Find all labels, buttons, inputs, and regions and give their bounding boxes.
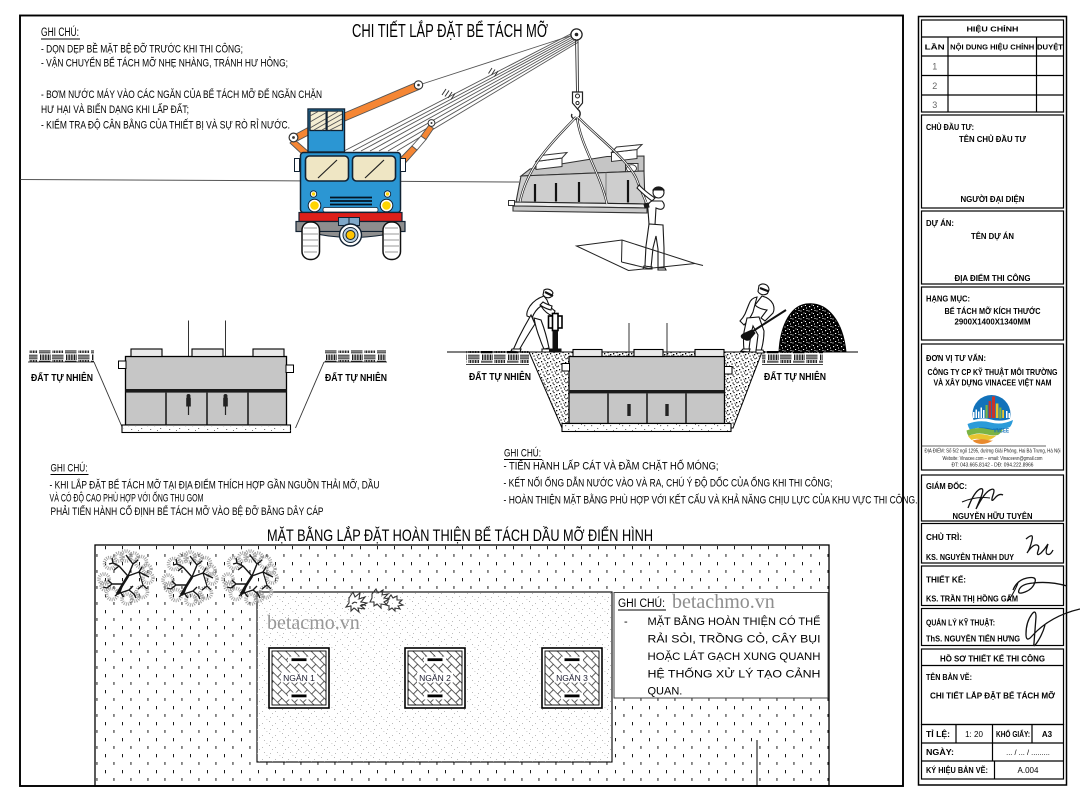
- svg-text:2900X1400X1340MM: 2900X1400X1340MM: [955, 318, 1031, 327]
- svg-text:CHI TIẾT LẮP ĐẶT BỂ TÁCH MỠ: CHI TIẾT LẮP ĐẶT BỂ TÁCH MỠ: [352, 20, 548, 41]
- svg-text:GHI CHÚ:: GHI CHÚ:: [51, 462, 88, 475]
- svg-text:VÀ CÓ ĐỘ CAO PHÙ HỢP VỚI ỐNG T: VÀ CÓ ĐỘ CAO PHÙ HỢP VỚI ỐNG THU GOM: [50, 491, 204, 505]
- svg-text:HƯ HẠI VÀ BIẾN DẠNG KHI LẤP ĐẤ: HƯ HẠI VÀ BIẾN DẠNG KHI LẤP ĐẤT;: [41, 103, 189, 116]
- svg-text:QUẢN LÝ KỸ THUẬT:: QUẢN LÝ KỸ THUẬT:: [926, 619, 995, 628]
- svg-text:- DỌN DẸP BỀ MẶT BỆ ĐỠ TRƯỚC K: - DỌN DẸP BỀ MẶT BỆ ĐỠ TRƯỚC KHI THI CÔN…: [41, 43, 243, 56]
- svg-text:CÔNG TY CP KỸ THUẬT MÔI TRƯỜNG: CÔNG TY CP KỸ THUẬT MÔI TRƯỜNG: [928, 366, 1058, 377]
- svg-text:PHẢI TIẾN HÀNH CỐ ĐỊNH BỂ TÁCH: PHẢI TIẾN HÀNH CỐ ĐỊNH BỂ TÁCH MỠ VÀO BỆ…: [51, 504, 324, 518]
- svg-text:HỆ THỐNG XỬ LÝ TẠO CẢNH: HỆ THỐNG XỬ LÝ TẠO CẢNH: [648, 667, 821, 681]
- svg-text:2: 2: [932, 81, 937, 91]
- svg-text:GHI CHÚ:: GHI CHÚ:: [41, 26, 79, 39]
- svg-text:A.004: A.004: [1018, 766, 1039, 775]
- svg-text:- BƠM NƯỚC MÁY VÀO CÁC NGĂN CỦ: - BƠM NƯỚC MÁY VÀO CÁC NGĂN CỦA BỂ TÁCH …: [41, 88, 322, 101]
- svg-text:TỈ LỆ:: TỈ LỆ:: [926, 730, 950, 739]
- svg-text:NGĂN 3: NGĂN 3: [556, 673, 588, 683]
- svg-text:VNCEE: VNCEE: [994, 428, 1010, 435]
- svg-text:QUAN.: QUAN.: [648, 686, 683, 698]
- svg-text:CHỦ ĐẦU TƯ:: CHỦ ĐẦU TƯ:: [926, 122, 974, 132]
- svg-text:- KHI LẮP ĐẶT BỂ TÁCH MỠ TẠI Đ: - KHI LẮP ĐẶT BỂ TÁCH MỠ TẠI ĐỊA ĐIỂM TH…: [50, 479, 380, 492]
- svg-text:RẢI SỎI, TRỒNG CỎ, CÂY BỤI: RẢI SỎI, TRỒNG CỎ, CÂY BỤI: [648, 633, 821, 646]
- svg-text:ĐẤT TỰ NHIÊN: ĐẤT TỰ NHIÊN: [325, 371, 387, 384]
- svg-text:ĐT: 043.665.8142 - DĐ: 094.222: ĐT: 043.665.8142 - DĐ: 094.222.8966: [952, 463, 1034, 469]
- svg-text:- HOÀN THIỆN MẶT BẰNG PHÙ HỢP: - HOÀN THIỆN MẶT BẰNG PHÙ HỢP VỚI KẾT CẤ…: [504, 494, 918, 507]
- svg-text:TÊN BẢN VẼ:: TÊN BẢN VẼ:: [926, 673, 972, 682]
- svg-text:A3: A3: [1042, 730, 1053, 739]
- svg-text:GHI CHÚ:: GHI CHÚ:: [618, 597, 665, 610]
- svg-text:1: 1: [932, 62, 937, 72]
- svg-text:HOẶC LÁT GẠCH XUNG QUANH: HOẶC LÁT GẠCH XUNG QUANH: [648, 650, 821, 663]
- svg-text:BỂ TÁCH MỠ KÍCH THƯỚC: BỂ TÁCH MỠ KÍCH THƯỚC: [945, 307, 1041, 316]
- svg-text:THIẾT KẾ:: THIẾT KẾ:: [926, 575, 966, 585]
- svg-text:VÀ XÂY DỰNG VINACEE VIỆT NAM: VÀ XÂY DỰNG VINACEE VIỆT NAM: [934, 377, 1052, 388]
- svg-text:- TIẾN HÀNH LẤP CÁT VÀ ĐẦM CHẶ: - TIẾN HÀNH LẤP CÁT VÀ ĐẦM CHẶT HỐ MÓNG;: [504, 459, 719, 473]
- svg-text:TÊN CHỦ ĐẦU TƯ: TÊN CHỦ ĐẦU TƯ: [959, 134, 1026, 144]
- svg-text:betacmo.vn: betacmo.vn: [267, 612, 360, 634]
- svg-text:NGĂN 1: NGĂN 1: [283, 673, 315, 683]
- svg-text:- KIỂM TRA ĐỘ CÂN BẰNG CỦA THI: - KIỂM TRA ĐỘ CÂN BẰNG CỦA THIẾT BỊ VÀ S…: [41, 119, 290, 132]
- svg-text:MẶT BẰNG HOÀN THIỆN CÓ THỂ: MẶT BẰNG HOÀN THIỆN CÓ THỂ: [648, 615, 821, 628]
- svg-text:NGÀY:: NGÀY:: [926, 748, 954, 757]
- svg-text:CHỦ TRÌ:: CHỦ TRÌ:: [926, 533, 962, 542]
- svg-text:-: -: [624, 616, 628, 628]
- svg-text:NGĂN 2: NGĂN 2: [419, 673, 451, 683]
- svg-text:- KẾT NỐI ỐNG DẪN NƯỚC VÀO VÀ: - KẾT NỐI ỐNG DẪN NƯỚC VÀO VÀ RA, CHÚ Ý …: [504, 476, 833, 490]
- svg-text:ĐỊA ĐIỂM: Số 5/2 ngõ 1295, đườ: ĐỊA ĐIỂM: Số 5/2 ngõ 1295, đường Giải Ph…: [925, 448, 1061, 455]
- svg-text:HIỆU CHỈNH: HIỆU CHỈNH: [967, 25, 1019, 34]
- svg-text:NGƯỜI ĐẠI DIỆN: NGƯỜI ĐẠI DIỆN: [961, 195, 1025, 204]
- svg-text:- VẬN CHUYỂN BỂ TÁCH MỠ NHẸ NH: - VẬN CHUYỂN BỂ TÁCH MỠ NHẸ NHÀNG, TRÁNH…: [41, 57, 288, 70]
- svg-text:ĐƠN VỊ TƯ VẤN:: ĐƠN VỊ TƯ VẤN:: [926, 353, 986, 363]
- svg-text:DUYỆT: DUYỆT: [1037, 43, 1063, 52]
- svg-text:KS. NGUYỄN THÀNH DUY: KS. NGUYỄN THÀNH DUY: [926, 551, 1014, 562]
- svg-text:ĐẤT TỰ NHIÊN: ĐẤT TỰ NHIÊN: [31, 371, 93, 384]
- svg-text:GHI CHÚ:: GHI CHÚ:: [504, 447, 541, 460]
- svg-text:ThS. NGUYỄN TIẾN HƯNG: ThS. NGUYỄN TIẾN HƯNG: [926, 633, 1020, 644]
- svg-text:HẠNG MỤC:: HẠNG MỤC:: [926, 295, 970, 304]
- svg-text:Website: Vinacee.com – email: Website: Vinacee.com – email: Vinaceevn@…: [943, 456, 1043, 462]
- svg-text:3: 3: [932, 100, 937, 110]
- svg-text:DỰ ÁN:: DỰ ÁN:: [926, 219, 954, 228]
- svg-text:GIÁM ĐỐC:: GIÁM ĐỐC:: [926, 481, 967, 491]
- svg-text:NỘI DUNG HIỆU CHỈNH: NỘI DUNG HIỆU CHỈNH: [950, 43, 1034, 52]
- svg-text:ĐẤT TỰ NHIÊN: ĐẤT TỰ NHIÊN: [469, 370, 531, 383]
- svg-text:betachmo.vn: betachmo.vn: [672, 591, 775, 613]
- svg-text:HỒ SƠ THIẾT KẾ THI CÔNG: HỒ SƠ THIẾT KẾ THI CÔNG: [940, 653, 1045, 664]
- svg-text:KÝ HIỆU BẢN VẼ:: KÝ HIỆU BẢN VẼ:: [926, 766, 988, 775]
- svg-text:KHỔ GIẤY:: KHỔ GIẤY:: [996, 729, 1030, 739]
- svg-text:TÊN DỰ ÁN: TÊN DỰ ÁN: [971, 232, 1014, 241]
- svg-text:NGUYỄN HỮU TUYÊN: NGUYỄN HỮU TUYÊN: [953, 510, 1033, 521]
- svg-text:... / ... / .........: ... / ... / .........: [1006, 748, 1050, 757]
- svg-text:ĐỊA ĐIỂM THI CÔNG: ĐỊA ĐIỂM THI CÔNG: [955, 274, 1031, 283]
- svg-text:ĐẤT TỰ NHIÊN: ĐẤT TỰ NHIÊN: [764, 370, 826, 383]
- svg-text:KS. TRẦN THỊ HỒNG GẤM: KS. TRẦN THỊ HỒNG GẤM: [926, 593, 1018, 604]
- svg-text:1: 20: 1: 20: [965, 730, 983, 739]
- svg-text:MẶT BẰNG LẮP ĐẶT HOÀN THIỆN BỂ: MẶT BẰNG LẮP ĐẶT HOÀN THIỆN BỂ TÁCH DẦU …: [267, 525, 653, 545]
- svg-text:CHI TIẾT LẮP ĐẶT BỂ TÁCH MỠ: CHI TIẾT LẮP ĐẶT BỂ TÁCH MỠ: [930, 690, 1056, 701]
- svg-text:LẦN: LẦN: [925, 42, 945, 52]
